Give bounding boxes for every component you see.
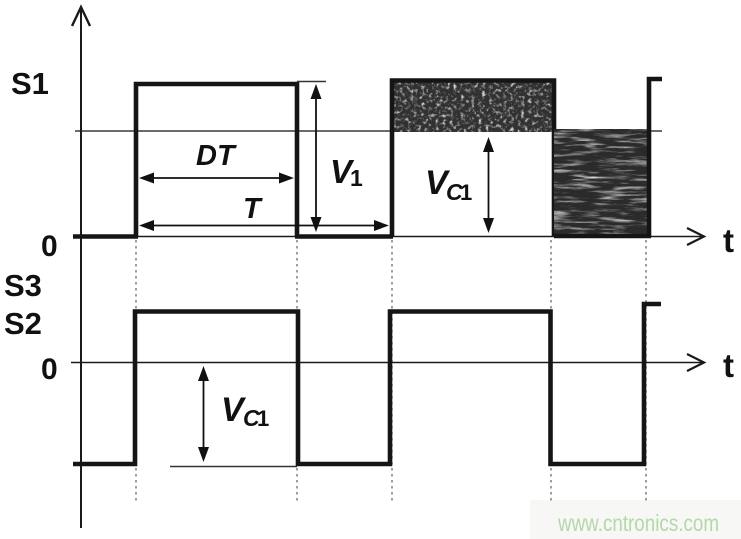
svg-text:1: 1	[257, 406, 269, 431]
svg-text:www.cntronics.com: www.cntronics.com	[557, 510, 719, 536]
svg-text:DT: DT	[196, 140, 237, 172]
svg-text:1: 1	[350, 165, 363, 191]
svg-text:t: t	[723, 347, 734, 384]
svg-text:0: 0	[41, 353, 58, 386]
svg-text:T: T	[243, 193, 263, 225]
svg-text:S3: S3	[4, 268, 42, 303]
svg-text:S1: S1	[11, 66, 49, 101]
svg-text:S2: S2	[4, 306, 42, 341]
svg-text:0: 0	[41, 230, 58, 263]
svg-text:t: t	[723, 222, 734, 259]
svg-text:1: 1	[460, 180, 472, 205]
